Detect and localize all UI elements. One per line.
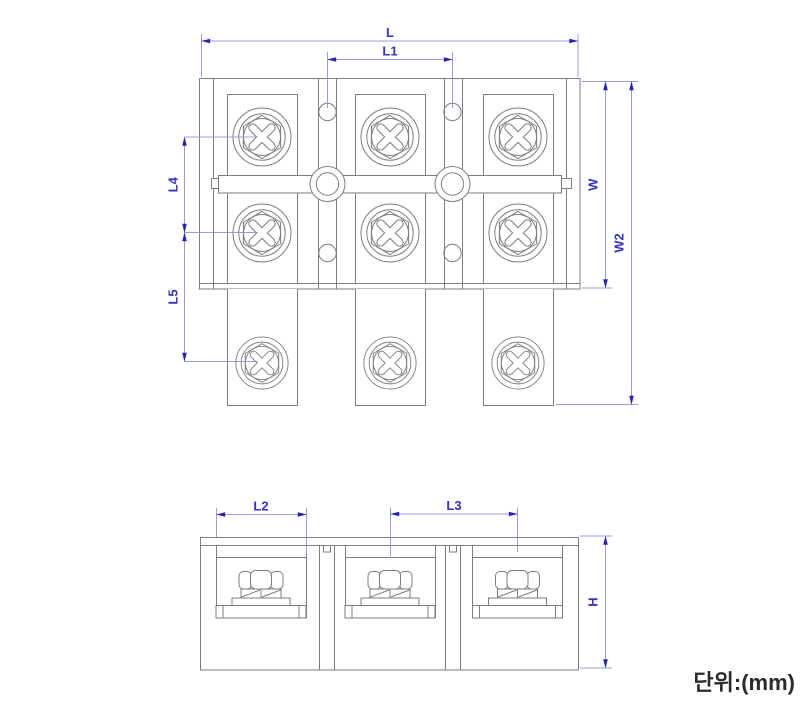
dim-label-l1: L1	[382, 44, 397, 59]
unit-note: 단위:(mm)	[693, 670, 795, 695]
dim-label-h: H	[586, 597, 601, 606]
technical-drawing-page: L L1 L4 L5 W	[0, 0, 800, 708]
dim-H: H	[580, 536, 612, 668]
dim-label-l4: L4	[166, 176, 181, 192]
dim-label-w: W	[586, 178, 601, 191]
dim-label-l5: L5	[166, 289, 181, 304]
terminal-block-drawing: L L1 L4 L5 W	[0, 0, 800, 708]
dim-label-l2: L2	[253, 499, 268, 514]
front-view	[201, 538, 579, 671]
dim-label-w2: W2	[612, 233, 627, 253]
dim-label-l3: L3	[446, 498, 461, 513]
top-view	[200, 79, 581, 406]
center-barrier-bar	[212, 176, 572, 194]
dim-W: W	[582, 82, 612, 289]
dim-label-l: L	[386, 25, 394, 40]
